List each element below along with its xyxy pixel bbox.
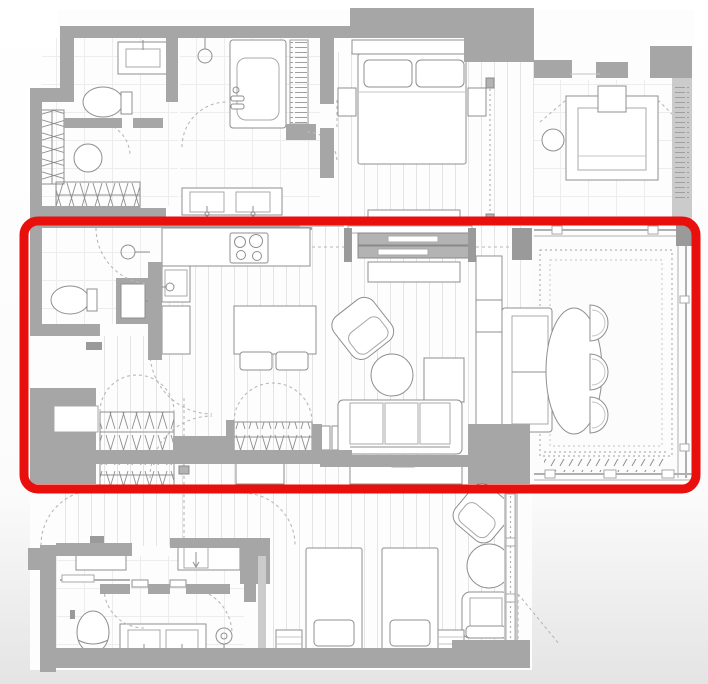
coffee-table <box>371 354 413 396</box>
side-table <box>542 129 564 151</box>
bench-sofa <box>502 308 552 432</box>
double-bed <box>358 54 466 164</box>
pillow <box>390 620 430 646</box>
basin-bowl <box>126 49 160 67</box>
pillow <box>416 60 464 87</box>
headboard-shelf <box>352 40 474 54</box>
media-cabinet <box>476 256 502 432</box>
stool <box>276 352 308 370</box>
daybed <box>566 86 658 180</box>
armchair <box>462 592 510 638</box>
single-bed <box>382 548 438 650</box>
door-leaf <box>86 342 102 350</box>
pillow <box>314 620 354 646</box>
nightstand <box>338 88 356 116</box>
window-strip <box>675 84 689 200</box>
wall-stub <box>286 124 316 140</box>
nightstand <box>468 88 486 116</box>
side-table <box>424 358 464 402</box>
bathtub <box>230 40 286 128</box>
island <box>234 306 316 354</box>
floor-plan-screenshot <box>0 0 708 684</box>
cooktop <box>230 233 268 263</box>
stool <box>74 144 102 172</box>
stool <box>240 352 272 370</box>
single-bed <box>306 548 362 650</box>
double-vanity <box>182 188 282 216</box>
tall-cabinet <box>162 306 190 354</box>
toilet <box>51 286 97 314</box>
wall-basin <box>121 284 145 318</box>
toilet <box>83 87 132 117</box>
bench <box>368 262 460 282</box>
pillow <box>364 60 412 87</box>
sofa <box>338 400 462 454</box>
dining-chairs <box>590 305 608 433</box>
window-wall <box>504 490 518 648</box>
floor-plan-canvas <box>0 0 708 684</box>
towel-radiator <box>290 40 308 124</box>
